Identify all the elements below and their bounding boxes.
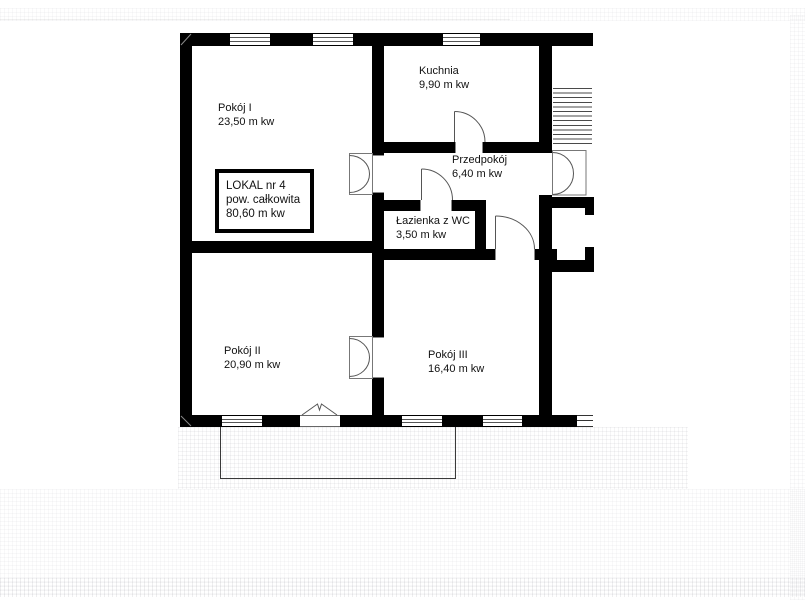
entrance-double-door-icon: [553, 151, 587, 196]
wall-bath-top-a: [372, 200, 420, 211]
unit-subtitle: pow. całkowita: [226, 193, 310, 207]
room3-door-icon: [496, 216, 535, 249]
wall-middle-vertical-a: [372, 45, 384, 155]
door-opening-room1: [372, 155, 384, 193]
window-neighbor-lines: [577, 415, 593, 427]
wall-shaft-right-a: [585, 197, 594, 215]
kitchen-door-icon: [455, 112, 486, 143]
room-name: Pokój II: [224, 344, 280, 358]
window-room2: [222, 415, 262, 427]
scan-line-top: [0, 19, 510, 20]
wall-kitchen-hall-b: [483, 142, 551, 153]
room2-double-door-icon: [350, 337, 373, 379]
room-area: 16,40 m kw: [428, 362, 484, 376]
room-name: Pokój III: [428, 348, 484, 362]
floor-plan: Pokój I 23,50 m kw Kuchnia 9,90 m kw Prz…: [0, 0, 805, 603]
room-label-pokoj-ii: Pokój II 20,90 m kw: [224, 344, 280, 372]
room-area: 3,50 m kw: [396, 228, 470, 242]
door-opening-kitchen: [455, 142, 483, 153]
room-label-lazienka: Łazienka z WC 3,50 m kw: [396, 214, 470, 242]
room-name: Pokój I: [218, 101, 274, 115]
scan-texture-bottom-band: [0, 578, 805, 597]
room-label-pokoj-iii: Pokój III 16,40 m kw: [428, 348, 484, 376]
wall-bath-bottom-b: [535, 249, 557, 260]
door-opening-room2: [372, 337, 384, 378]
room-label-przedpokoj: Przedpokój 6,40 m kw: [452, 153, 507, 181]
room-name: Kuchnia: [419, 64, 469, 78]
wall-shaft-bottom: [539, 260, 594, 272]
room-label-kuchnia: Kuchnia 9,90 m kw: [419, 64, 469, 92]
unit-summary-box: LOKAL nr 4 pow. całkowita 80,60 m kw: [215, 169, 314, 233]
wall-middle-vertical-b: [372, 193, 384, 337]
wall-bath-bottom-a: [372, 249, 495, 260]
window-room3-right: [483, 415, 522, 427]
window-room1-right: [313, 33, 353, 46]
room-area: 6,40 m kw: [452, 167, 507, 181]
room-area: 9,90 m kw: [419, 78, 469, 92]
window-kitchen: [443, 33, 480, 46]
window-room3-left: [402, 415, 442, 427]
room-area: 20,90 m kw: [224, 358, 280, 372]
wall-right-lower: [539, 195, 552, 427]
wall-kitchen-hall-a: [372, 142, 455, 153]
balcony-door-opening: [300, 415, 340, 427]
entrance-door-opening: [539, 153, 552, 195]
bath-door-icon: [422, 169, 453, 200]
room-area: 23,50 m kw: [218, 115, 274, 129]
wall-left: [180, 33, 192, 427]
balcony: [220, 427, 456, 479]
room1-double-door-icon: [350, 154, 373, 195]
window-room1-left: [230, 33, 270, 46]
door-opening-room3: [495, 249, 535, 260]
stairs: [553, 88, 592, 148]
wall-room1-room2: [180, 241, 384, 253]
room-name: Przedpokój: [452, 153, 507, 167]
wall-middle-vertical-c: [372, 378, 384, 425]
door-opening-bath: [420, 200, 452, 211]
unit-title: LOKAL nr 4: [226, 179, 310, 193]
balcony-door-icon: [302, 404, 337, 415]
unit-area: 80,60 m kw: [226, 207, 310, 221]
wall-right-upper: [539, 33, 552, 153]
room-name: Łazienka z WC: [396, 214, 470, 228]
room-label-pokoj-i: Pokój I 23,50 m kw: [218, 101, 274, 129]
